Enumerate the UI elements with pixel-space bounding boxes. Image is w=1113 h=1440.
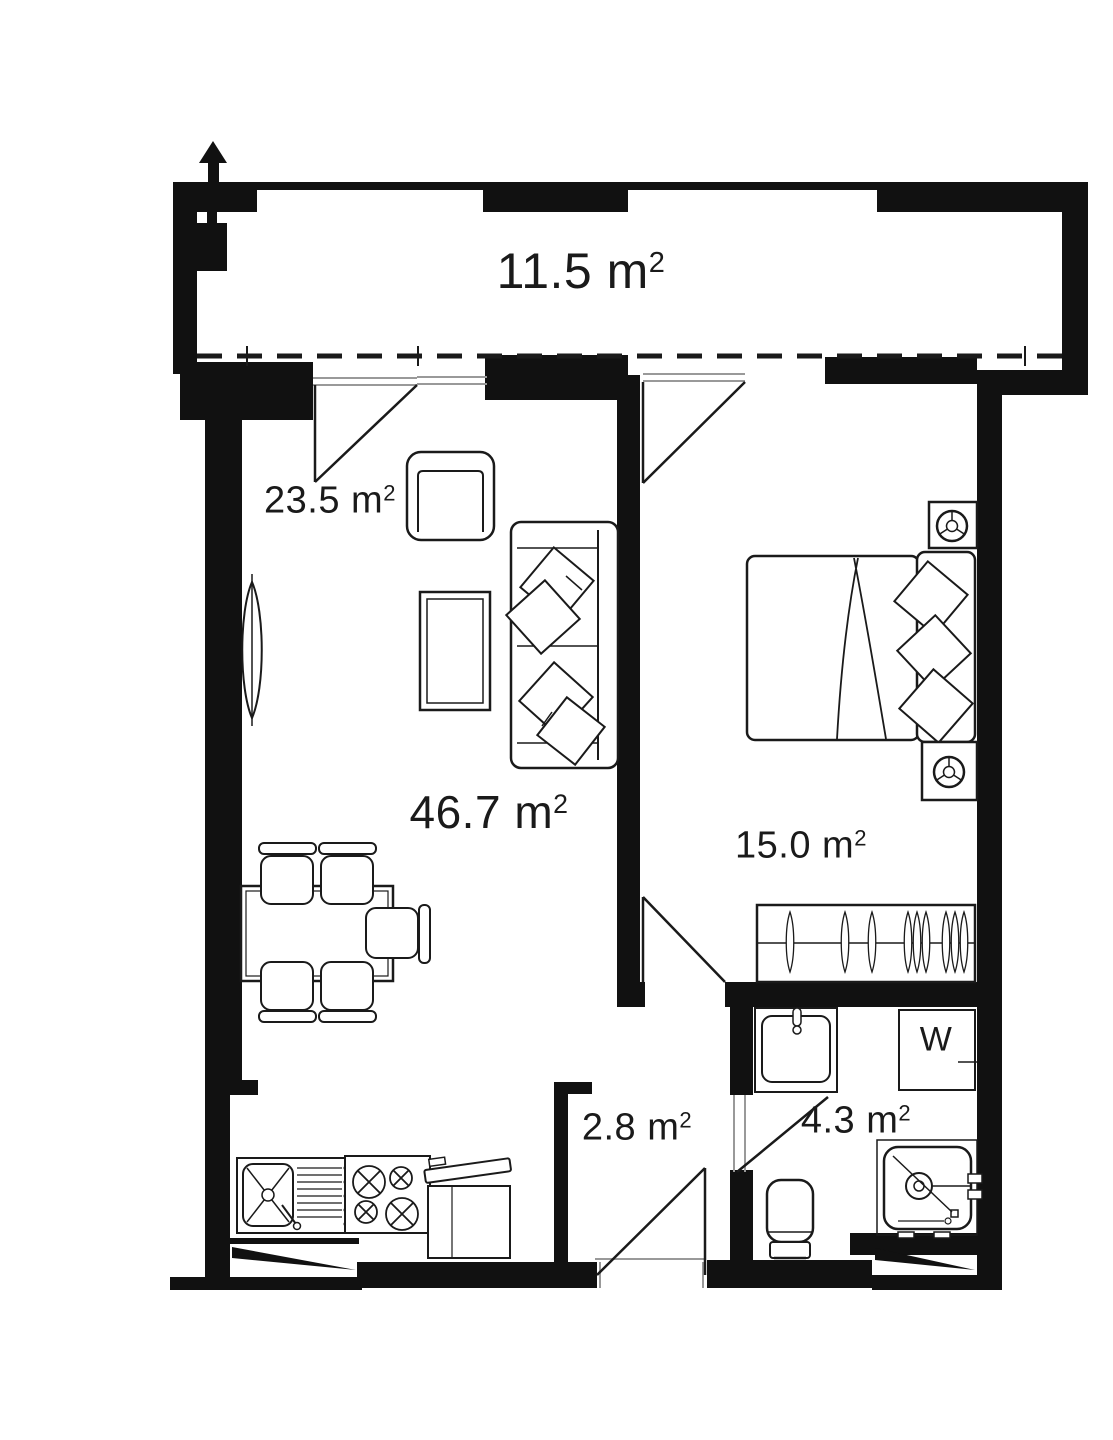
bed [747, 552, 975, 743]
bedroom-area-value: 15.0 m [735, 825, 854, 867]
armchair [407, 452, 494, 540]
bed-mattress [747, 556, 919, 740]
chair-back [319, 1011, 376, 1022]
room-label-hallway: 2.8 m2 [582, 1107, 692, 1150]
kitchen-counter [237, 1156, 511, 1258]
bed-pillows [894, 561, 972, 742]
bedroom-door [643, 897, 725, 982]
chair-seat [261, 962, 313, 1010]
dining-set [241, 843, 430, 1022]
kitchen-window-sill [232, 1247, 356, 1270]
room-label-balcony: 11.5 m2 [497, 242, 666, 300]
hallway-area-value: 2.8 m [582, 1107, 680, 1149]
living-total-area-value: 46.7 m [410, 786, 554, 838]
wardrobe [757, 905, 975, 982]
room-label-bedroom: 15.0 m2 [735, 825, 867, 868]
sofa [506, 522, 618, 768]
balcony-glazing-dashed-line [197, 346, 1062, 366]
entry-door [597, 1168, 705, 1275]
living-zone-area-value: 23.5 m [264, 480, 383, 522]
shower [877, 1140, 982, 1238]
washer-label: W [920, 1021, 953, 1060]
direction-arrow-icon [199, 141, 227, 191]
room-label-living-total: 46.7 m2 [410, 785, 569, 839]
toilet [767, 1180, 813, 1258]
bathroom-area-value: 4.3 m [801, 1100, 899, 1142]
bedroom-balcony-door [643, 382, 745, 483]
bathroom-window-sill [875, 1248, 975, 1270]
balcony-area-value: 11.5 m [497, 243, 649, 299]
room-label-bathroom: 4.3 m2 [801, 1100, 911, 1143]
radiator-leaf [242, 574, 262, 726]
chair-seat [321, 962, 373, 1010]
chair-seat [366, 908, 418, 958]
kitchen-appliance [424, 1157, 511, 1258]
chair-back [259, 1011, 316, 1022]
chair-seat [261, 856, 313, 904]
nightstand-top [929, 502, 977, 548]
shower-faucet [968, 1174, 982, 1183]
living-balcony-door [315, 385, 417, 482]
floorplan-lineart [0, 0, 1113, 1440]
window-sills [232, 1247, 975, 1270]
nightstand-bottom [922, 742, 977, 800]
coffee-table [420, 592, 490, 710]
chair-back [259, 843, 316, 854]
chair-back [419, 905, 430, 963]
floor-plan: 11.5 m2 23.5 m2 46.7 m2 15.0 m2 2.8 m2 4… [0, 0, 1113, 1440]
chair-back [319, 843, 376, 854]
shower-foot [898, 1232, 914, 1238]
shower-faucet [968, 1190, 982, 1199]
bathroom-sink [755, 1008, 837, 1092]
room-label-living-zone: 23.5 m2 [264, 480, 396, 523]
bathroom-faucet [793, 1008, 801, 1034]
chair-seat [321, 856, 373, 904]
shower-foot [934, 1232, 950, 1238]
